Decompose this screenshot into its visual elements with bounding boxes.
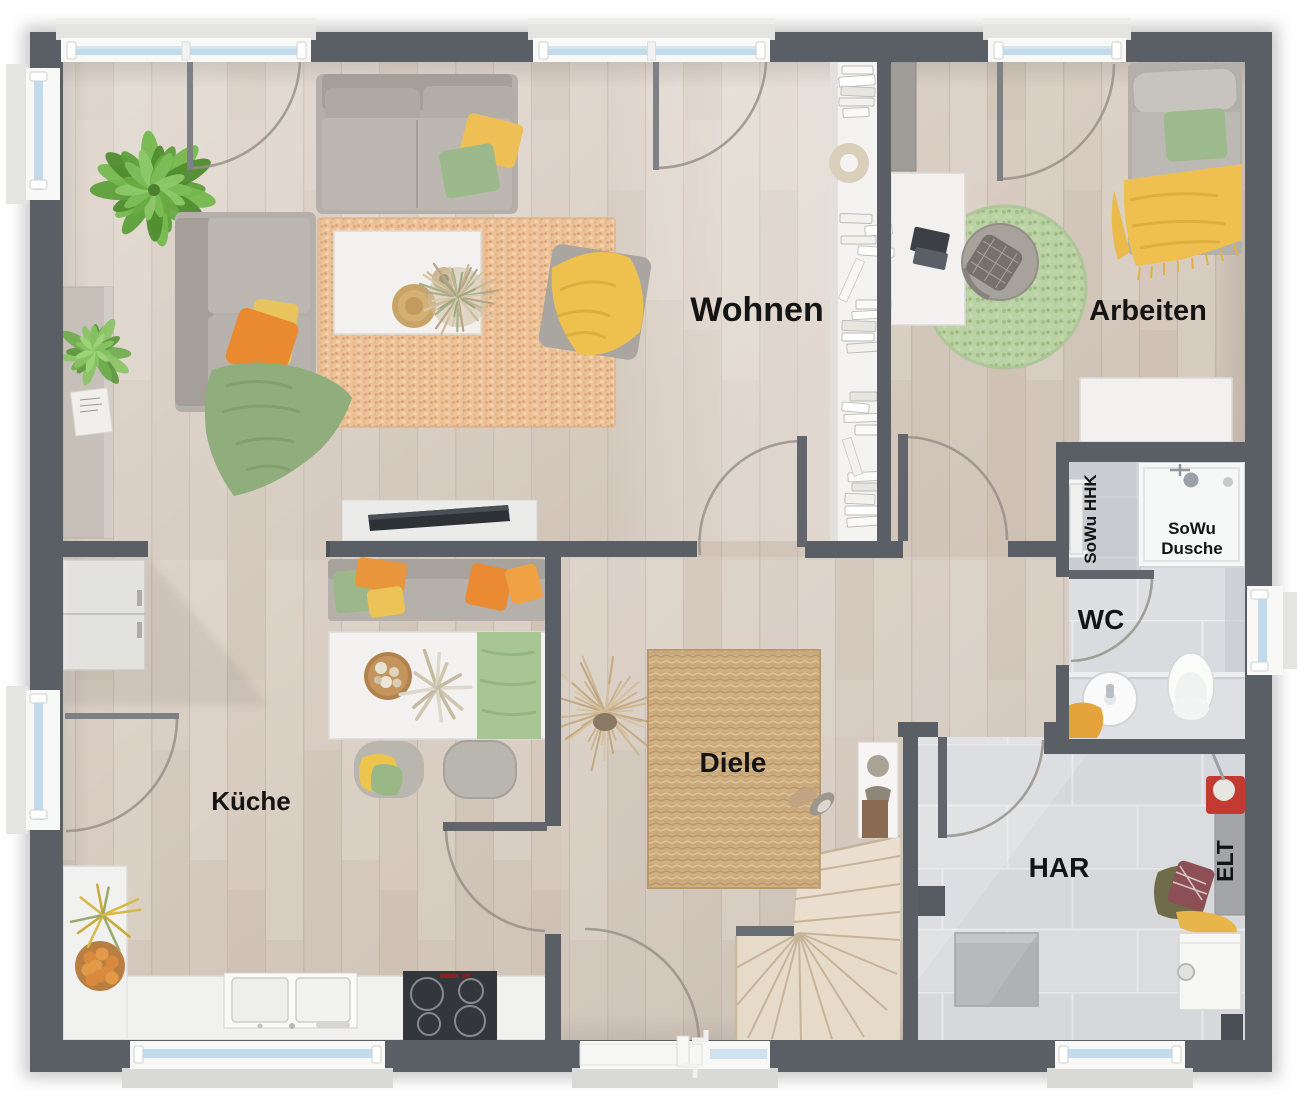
svg-text:Küche: Küche bbox=[211, 786, 290, 816]
svg-text:Arbeiten: Arbeiten bbox=[1089, 295, 1207, 327]
svg-text:WC: WC bbox=[1078, 604, 1125, 635]
svg-text:SoWu: SoWu bbox=[1168, 519, 1216, 538]
svg-text:Diele: Diele bbox=[700, 747, 767, 778]
svg-text:Dusche: Dusche bbox=[1161, 539, 1222, 558]
svg-text:HAR: HAR bbox=[1029, 852, 1090, 883]
svg-text:SoWu HHK: SoWu HHK bbox=[1081, 474, 1100, 564]
svg-text:ELT: ELT bbox=[1212, 840, 1238, 882]
svg-text:Wohnen: Wohnen bbox=[690, 291, 823, 329]
